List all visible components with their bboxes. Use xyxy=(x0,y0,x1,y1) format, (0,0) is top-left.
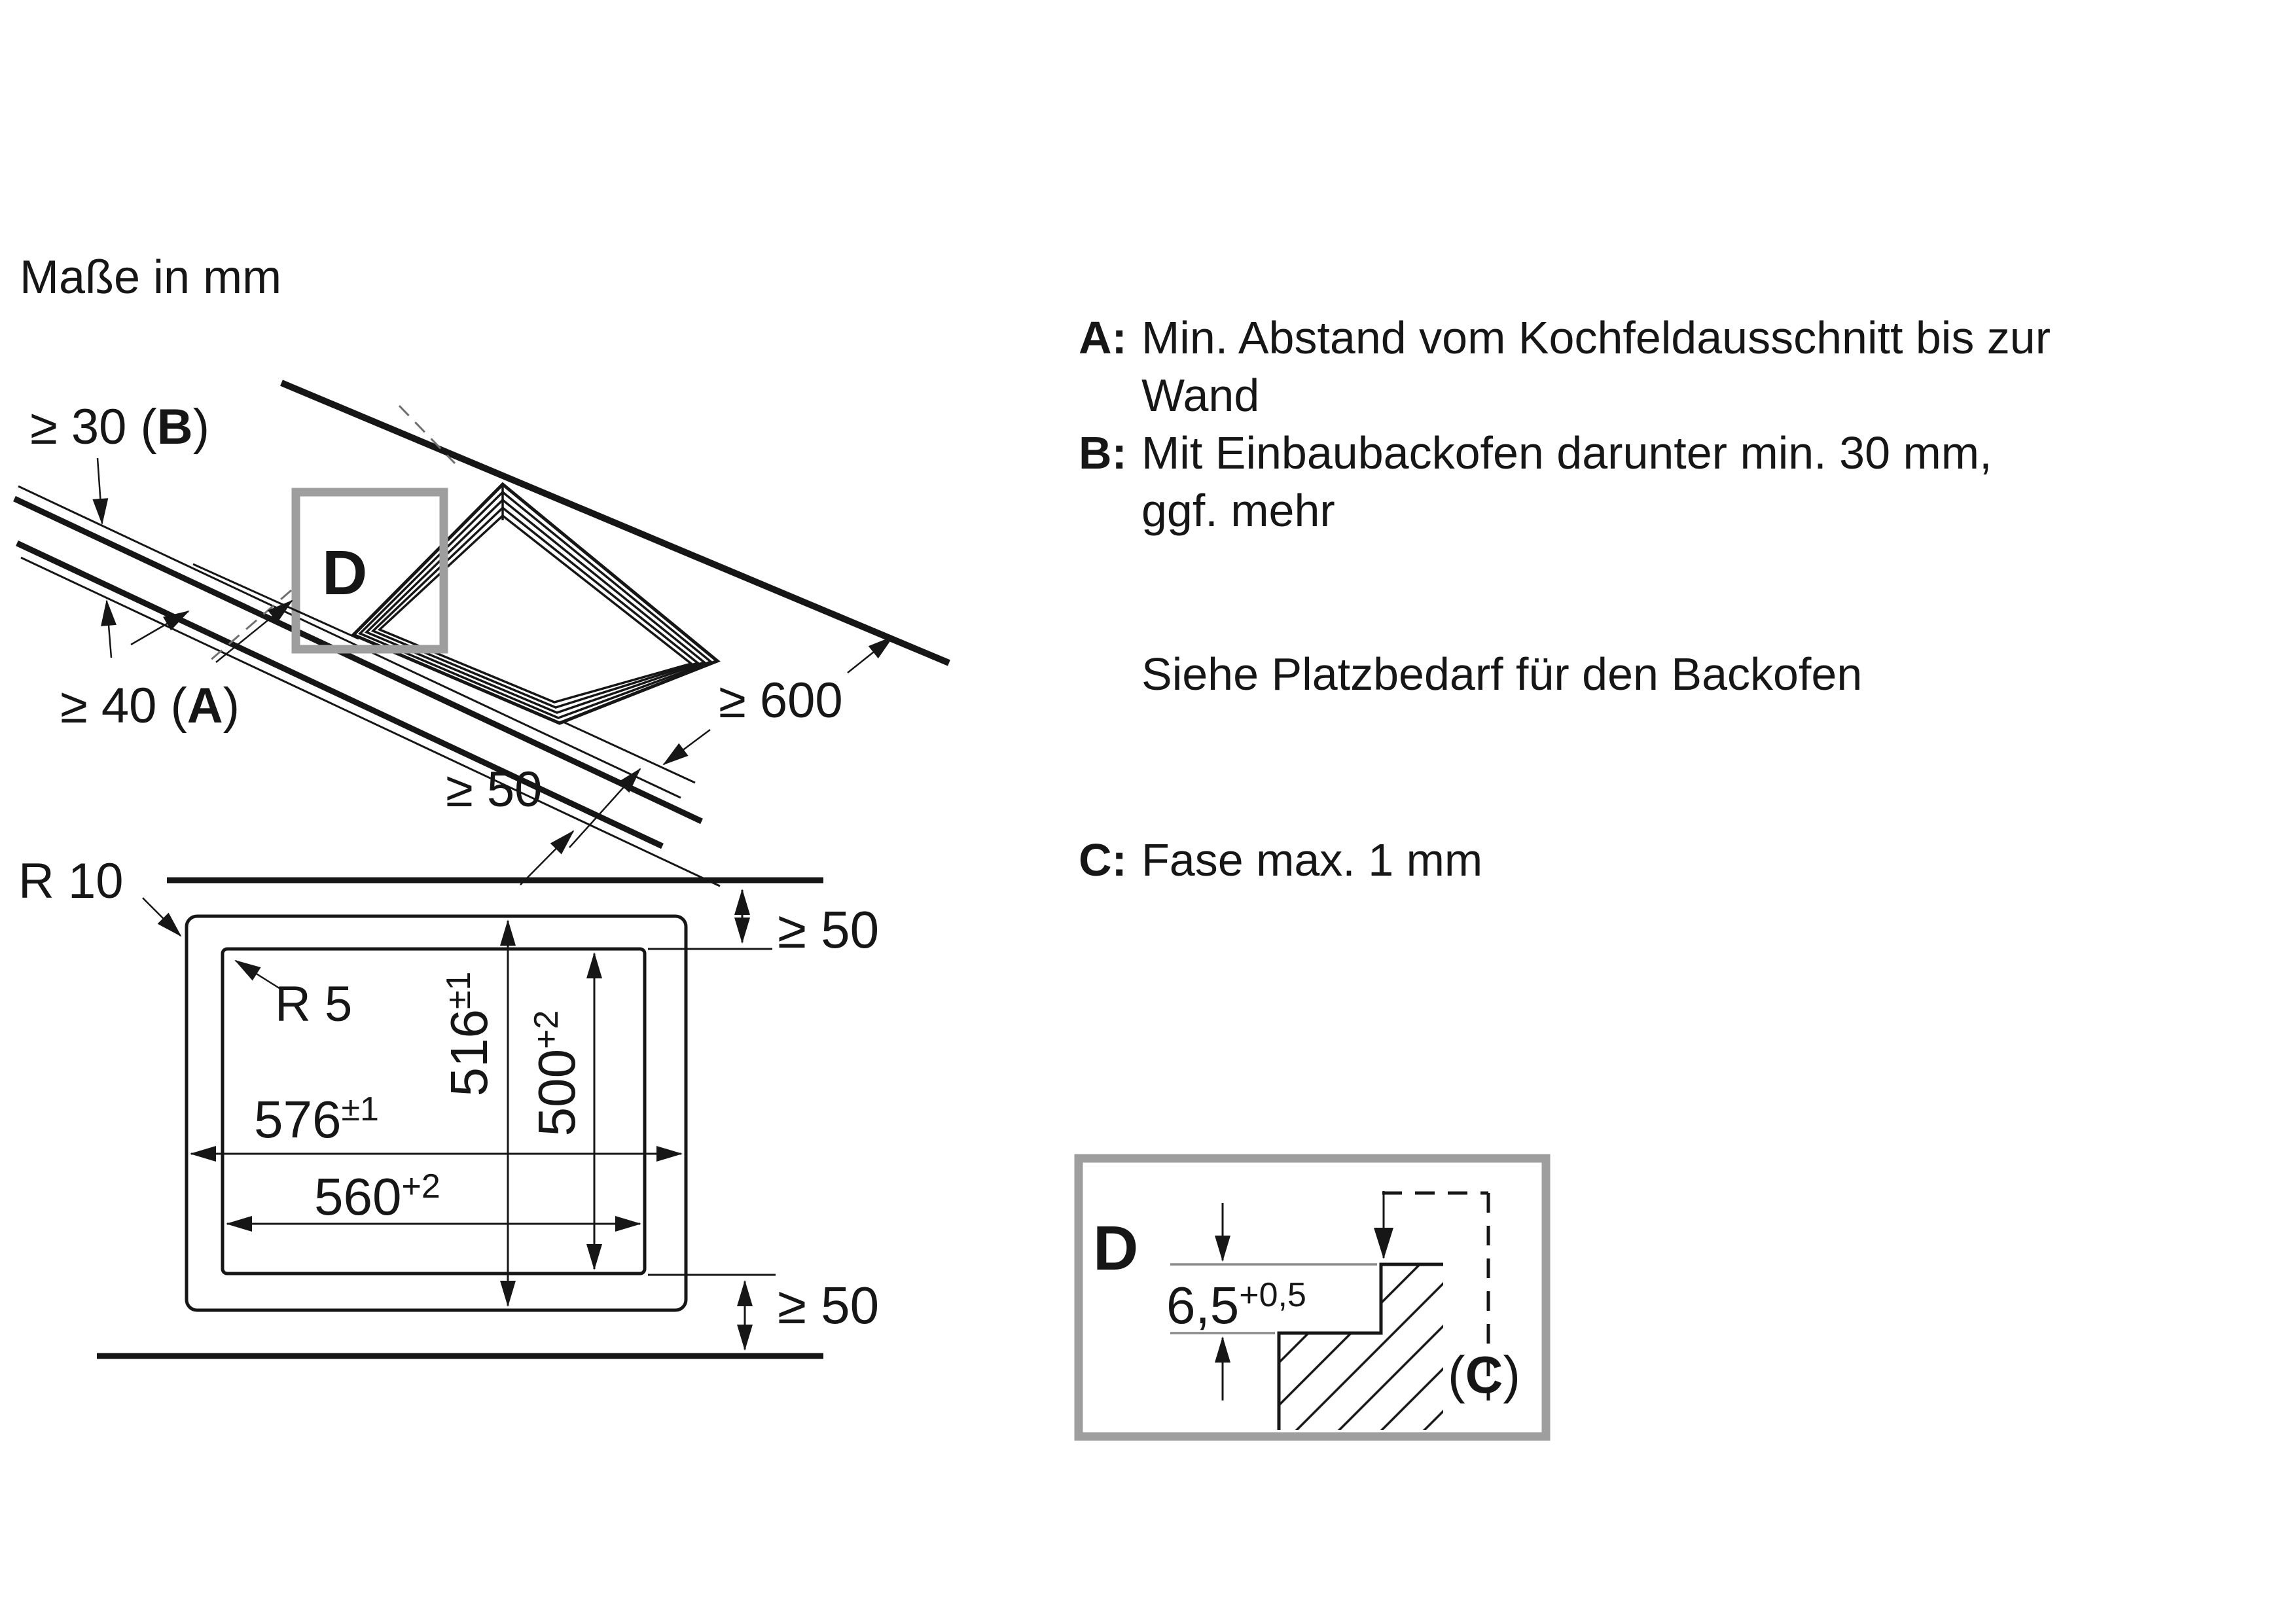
dim-label-hob-depth: 516±1 xyxy=(440,972,498,1097)
dim-label-front-gap: ≥ 50 xyxy=(446,762,542,817)
dim-clearance-rear: ≥ 50 xyxy=(648,890,879,959)
note-c-text: Fase max. 1 mm xyxy=(1141,831,1482,889)
dim-label-b: ≥ 30 (B) xyxy=(30,399,209,455)
dim-arrow xyxy=(848,637,893,673)
dim-label-clearance-rear: ≥ 50 xyxy=(778,901,879,959)
cutout-opening xyxy=(353,484,717,723)
page-title: Maße in mm xyxy=(20,251,281,304)
dim-label-cutout-depth: 500+2 xyxy=(528,1010,586,1137)
dim-arrow-up xyxy=(107,601,111,658)
dim-arrow xyxy=(520,831,573,885)
detail-marker-label: D xyxy=(322,538,367,608)
note-a-label: A: xyxy=(1079,309,1141,366)
note-c-label: C: xyxy=(1079,831,1141,889)
wall-line xyxy=(281,383,949,663)
dim-label-cutout-width: 560+2 xyxy=(314,1168,440,1226)
notes-list: A: Min. Abstand vom Kochfeldausschnitt b… xyxy=(1079,309,2276,539)
note-b-label: B: xyxy=(1079,424,1141,482)
dim-label-clearance-front: ≥ 50 xyxy=(778,1276,879,1334)
plan-view: R 10 R 5 576±1 560+2 516±1 500+2 ≥ 50 xyxy=(18,853,879,1356)
dim-arrow xyxy=(131,611,188,645)
technical-drawing: D ≥ 30 (B) ≥ 40 (A) ≥ 50 xyxy=(0,0,2296,1623)
note-a-text: Min. Abstand vom Kochfeldausschnitt bis … xyxy=(1141,309,2051,424)
detail-d-view: D 6,5+0,5 (C) xyxy=(1079,1158,1546,1436)
note-b-text: Mit Einbaubackofen darunter min. 30 mm, … xyxy=(1141,424,1992,539)
dim-label-depth: ≥ 600 xyxy=(719,673,843,728)
radius-outer-arrow xyxy=(143,898,181,936)
oven-space-note: Siehe Platzbedarf für den Backofen xyxy=(1141,645,1862,703)
front-edge-line xyxy=(18,486,681,798)
note-b: B: Mit Einbaubackofen darunter min. 30 m… xyxy=(1079,424,2276,539)
dim-clearance-front: ≥ 50 xyxy=(648,1275,879,1349)
dim-arrow xyxy=(664,730,710,764)
detail-marker-frame xyxy=(296,492,444,649)
radius-inner-arrow xyxy=(236,961,281,990)
radius-outer-label: R 10 xyxy=(18,853,124,909)
dim-label-step-depth: 6,5+0,5 xyxy=(1166,1276,1306,1334)
dim-label-a: ≥ 40 (A) xyxy=(60,678,240,734)
installation-diagram-page: D ≥ 30 (B) ≥ 40 (A) ≥ 50 xyxy=(0,0,2296,1623)
isometric-view: D ≥ 30 (B) ≥ 40 (A) ≥ 50 xyxy=(14,383,949,886)
dim-arrow-down xyxy=(98,458,102,524)
cutout-ring xyxy=(367,500,704,713)
radius-inner-label: R 5 xyxy=(275,976,352,1032)
detail-label: D xyxy=(1093,1213,1138,1283)
dim-label-hob-width: 576±1 xyxy=(254,1090,379,1149)
note-a: A: Min. Abstand vom Kochfeldausschnitt b… xyxy=(1079,309,2276,424)
chamfer-label: (C) xyxy=(1448,1346,1520,1404)
note-c: C: Fase max. 1 mm xyxy=(1079,831,1482,889)
